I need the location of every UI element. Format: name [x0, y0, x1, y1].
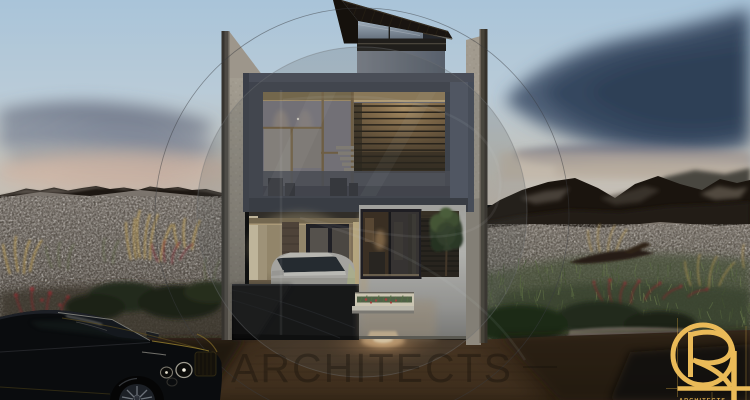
- svg-text:ARCHITECTS: ARCHITECTS: [231, 345, 513, 391]
